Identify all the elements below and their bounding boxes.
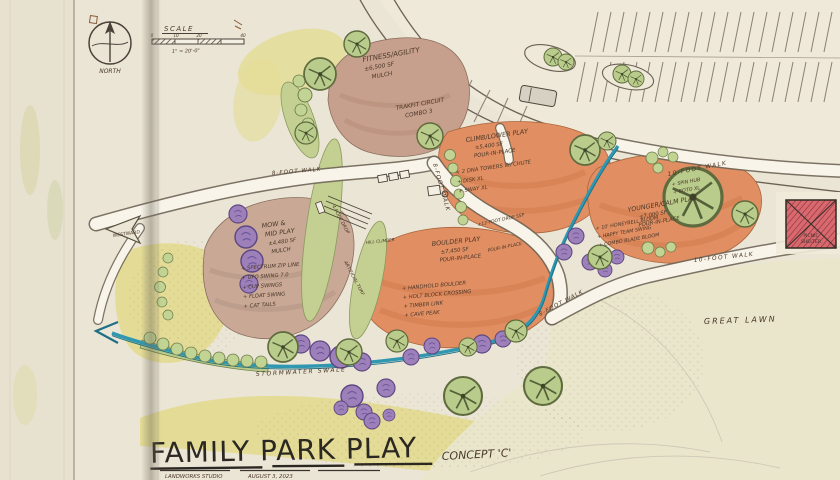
north-label: NORTH	[99, 68, 121, 75]
scanned-park-plan: PICNIC SHELTER FITNESS/AGILITY ±6,500 SF…	[0, 0, 840, 480]
sheet-date: AUGUST 3, 2023	[247, 474, 293, 480]
picnic-shelter-label-2: SHELTER	[801, 239, 822, 245]
scale-note: 1" = 20'-0"	[172, 48, 200, 55]
scale-tick: 10	[173, 33, 179, 38]
studio-credit: LANDWORKS STUDIO	[165, 474, 223, 480]
site-plan-drawing: PICNIC SHELTER FITNESS/AGILITY ±6,500 SF…	[0, 0, 840, 480]
scale-label: SCALE	[164, 25, 194, 33]
picnic-shelter: PICNIC SHELTER	[776, 192, 840, 254]
scale-tick: 40	[240, 33, 246, 38]
scale-tick: 20	[196, 33, 202, 38]
picnic-shelter-label-1: PICNIC	[803, 233, 818, 239]
